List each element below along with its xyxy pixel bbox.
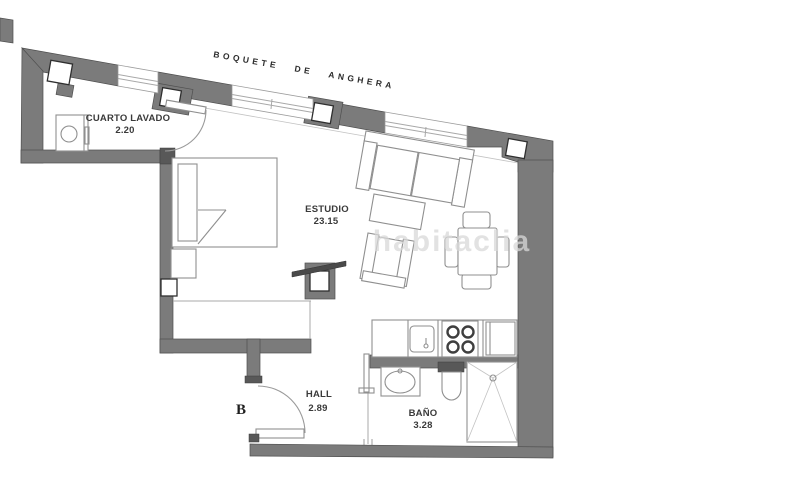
room-label-studio: ESTUDIO bbox=[305, 204, 349, 215]
entry-door bbox=[249, 386, 305, 442]
kitchen bbox=[372, 320, 517, 357]
entrance-letter: B bbox=[236, 402, 246, 418]
room-area-laundry: 2.20 bbox=[115, 125, 134, 136]
pillar bbox=[47, 60, 72, 85]
bathroom bbox=[359, 354, 517, 445]
street-label: BOQUETE DE ANGHERA bbox=[213, 49, 396, 91]
floorplan-image: BOQUETE DE ANGHERA CUARTO LAVADO 2.20 ES… bbox=[0, 0, 800, 500]
laundry-door bbox=[165, 100, 206, 151]
laundry-bottom-wall bbox=[21, 150, 173, 163]
room-label-bath: BAÑO bbox=[409, 408, 438, 419]
room-area-studio: 23.15 bbox=[314, 216, 339, 227]
room-area-bath: 3.28 bbox=[413, 420, 432, 431]
window bbox=[118, 65, 158, 93]
right-wall bbox=[518, 160, 553, 457]
kitchen-counter bbox=[372, 320, 517, 357]
plan-fragment bbox=[0, 18, 13, 43]
nightstand bbox=[171, 249, 196, 278]
bath-sink bbox=[381, 367, 420, 396]
bed bbox=[172, 158, 277, 247]
pillar bbox=[506, 139, 528, 159]
washing-machine bbox=[56, 115, 89, 151]
room-area-hall: 2.89 bbox=[308, 403, 327, 414]
hall-stub-wall bbox=[247, 339, 260, 381]
shower bbox=[467, 362, 517, 442]
room-label-hall: HALL bbox=[306, 389, 332, 400]
floor-plan-svg: BOQUETE DE ANGHERA CUARTO LAVADO 2.20 ES… bbox=[0, 0, 800, 500]
toilet bbox=[438, 362, 464, 400]
bottom-wall bbox=[250, 444, 553, 458]
room-label-laundry: CUARTO LAVADO bbox=[86, 113, 170, 124]
doorjamb bbox=[245, 376, 262, 383]
closet-bottom-wall bbox=[160, 339, 311, 353]
chair bbox=[462, 274, 491, 289]
pillar bbox=[312, 103, 334, 124]
pillar bbox=[161, 279, 177, 296]
watermark: habitaclia bbox=[373, 225, 531, 258]
